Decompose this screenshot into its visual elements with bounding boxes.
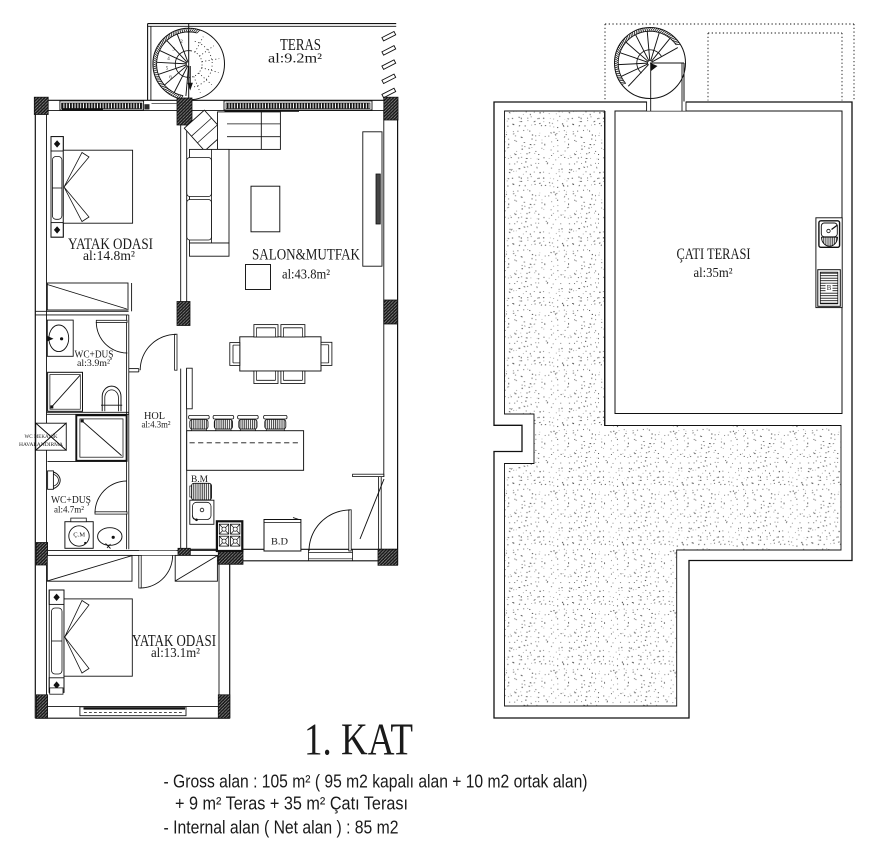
- svg-text:- Gross alan : 105 m² ( 95 m2: - Gross alan : 105 m² ( 95 m2 kapalı ala…: [164, 772, 588, 792]
- svg-text:al:13.1m²: al:13.1m²: [151, 645, 200, 660]
- svg-text:Ç.M: Ç.M: [73, 532, 85, 539]
- svg-text:SALON&MUTFAK: SALON&MUTFAK: [252, 247, 360, 264]
- svg-text:B: B: [827, 285, 832, 292]
- svg-text:1. KAT: 1. KAT: [304, 715, 413, 765]
- svg-text:al:43.8m²: al:43.8m²: [282, 267, 330, 282]
- svg-text:HAVALANDIRMA: HAVALANDIRMA: [19, 442, 63, 448]
- svg-text:+ 9 m² Teras + 35 m² Çatı Tera: + 9 m² Teras + 35 m² Çatı Terası: [175, 794, 408, 814]
- svg-text:al:4.3m²: al:4.3m²: [142, 421, 171, 431]
- svg-text:- Internal alan ( Net alan ) :: - Internal alan ( Net alan ) : 85 m2: [164, 818, 399, 838]
- svg-text:al:3.9m²: al:3.9m²: [77, 359, 110, 369]
- svg-text:al:14.8m²: al:14.8m²: [83, 248, 135, 263]
- svg-text:al:9.2m²: al:9.2m²: [268, 51, 322, 66]
- svg-text:al:35m²: al:35m²: [694, 265, 733, 280]
- svg-text:ÇATI TERASI: ÇATI TERASI: [677, 246, 751, 263]
- svg-text:WC+DUŞ: WC+DUŞ: [51, 495, 91, 506]
- svg-text:al:4.7m²: al:4.7m²: [54, 506, 84, 516]
- svg-text:WC MEKANİK: WC MEKANİK: [25, 433, 58, 440]
- svg-text:B.D: B.D: [271, 538, 288, 548]
